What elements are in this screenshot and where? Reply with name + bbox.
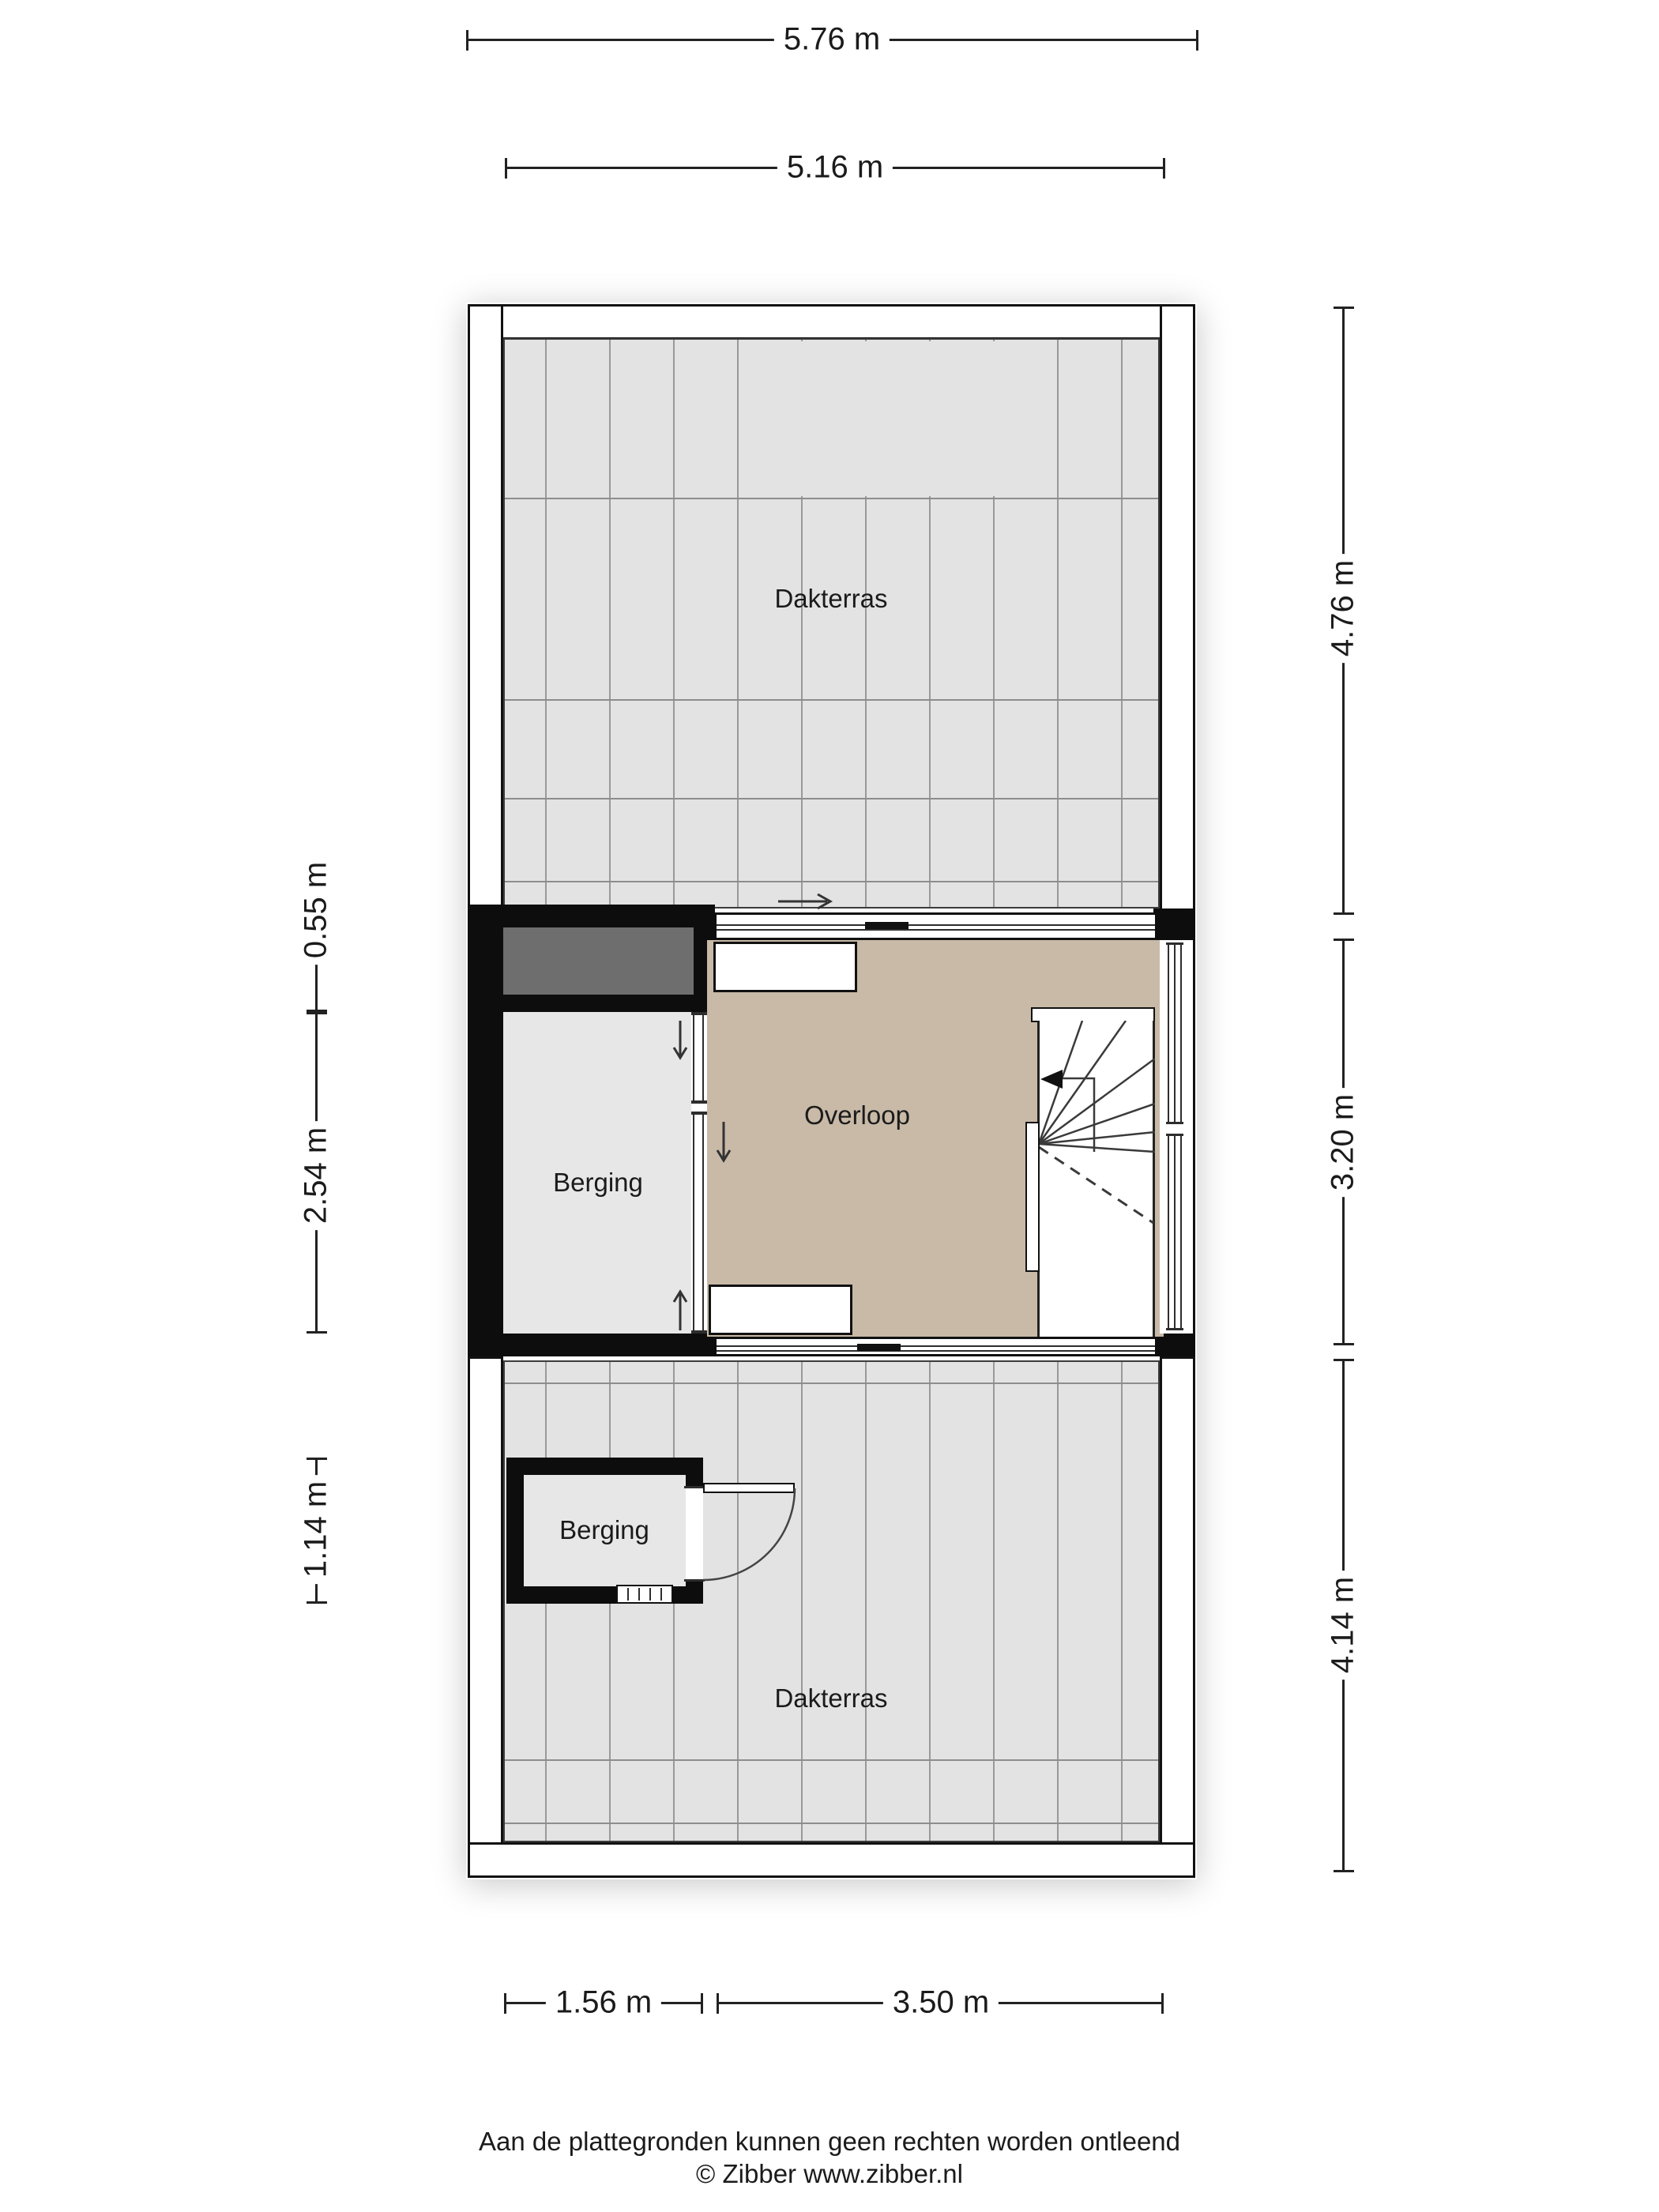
sliding-door-bottom [715,1337,1155,1356]
floorplan-page: Dakterras [0,0,1659,2212]
tile-joint-line [505,1823,1158,1824]
berging-sliding-door [691,1012,707,1334]
dimension-label-left-bottom: 1.14 m [299,1475,334,1584]
berging-vent-window [616,1585,673,1604]
stair-wall-stub [1025,1122,1040,1272]
room-label-dakterras-bottom: Dakterras [774,1683,887,1714]
dimension-label-left-middle: 2.54 m [299,1121,334,1230]
bottom-terrace-wall-bottom [468,1842,1195,1878]
roof-element [503,927,694,995]
dimension-label-right-middle: 3.20 m [1326,1088,1361,1197]
room-label-berging-middle: Berging [553,1168,643,1198]
dimension-label-right-top: 4.76 m [1326,554,1361,663]
middle-corner-block-top-right [1153,908,1195,940]
slide-direction-arrow-icon [778,891,833,912]
top-terrace-wall-left [468,304,503,911]
tile-joint-line [505,1382,1158,1384]
footer-disclaimer: Aan de plattegronden kunnen geen rechten… [0,2127,1659,2157]
stair-down-arrow-icon [1040,1070,1063,1089]
dimension-label-left-top: 0.55 m [299,856,334,965]
sliding-door-top-end-cap [709,912,717,940]
bottom-terrace-wall-right [1160,1356,1195,1878]
tile-joint-line [505,881,1158,882]
stair-treads-icon [1037,1021,1155,1337]
bottom-terrace-wall-left [468,1356,503,1878]
berging-door-opening [686,1488,703,1580]
slide-direction-arrow-down-icon [671,1021,689,1060]
slide-direction-arrow-up-icon [671,1289,689,1330]
cupboard-bottom [709,1285,852,1335]
room-label-overloop: Overloop [804,1100,910,1130]
room-label-berging-bottom: Berging [559,1515,649,1545]
dimension-label-right-bottom: 4.14 m [1326,1571,1361,1680]
dimension-label-width-inner: 5.16 m [777,150,893,186]
dimension-label-bottom-right: 3.50 m [883,1985,999,2021]
tile-joint-line [505,699,1158,701]
dimension-label-bottom-left: 1.56 m [546,1985,661,2021]
door-swing-arc [703,1488,798,1583]
tile-joint-line [505,1759,1158,1761]
sliding-door-handle [865,922,908,929]
sliding-door-bottom-end-cap [709,1337,717,1356]
tile-joint-line [505,798,1158,799]
tile-joint-line [505,498,1158,499]
top-terrace-tile-patch [739,341,995,496]
middle-corner-block-bottom-right [1153,1334,1195,1356]
slide-direction-arrow-down-icon [715,1122,732,1163]
top-terrace-wall-right [1160,304,1195,911]
footer-credit: © Zibber www.zibber.nl [0,2159,1659,2189]
middle-berging-wall-bottom [468,1334,715,1356]
sliding-door-top [715,912,1155,940]
room-label-dakterras-top: Dakterras [774,584,887,614]
cupboard-top [713,942,857,992]
dimension-label-width-outer: 5.76 m [774,22,890,58]
sliding-door-handle [857,1344,901,1351]
top-terrace-wall-top [468,304,1195,340]
middle-window-wall [1160,940,1195,1334]
